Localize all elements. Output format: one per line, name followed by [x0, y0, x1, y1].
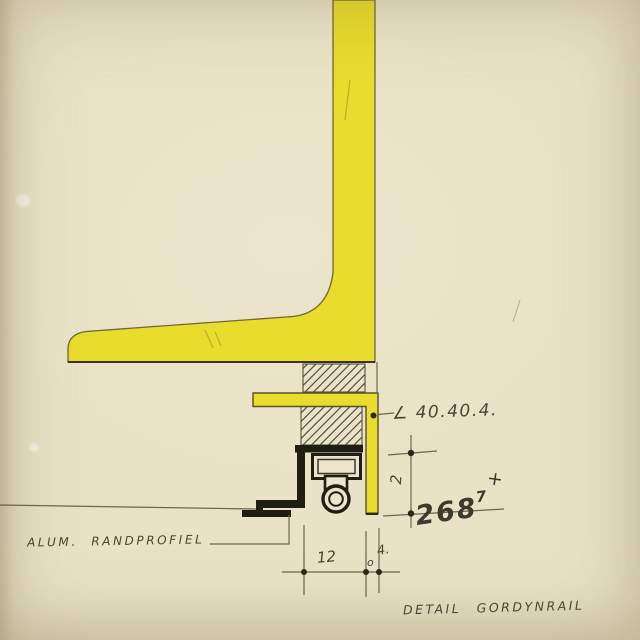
- blocking-hatch-lower: [301, 407, 362, 446]
- dim-gap-origin: o: [367, 557, 374, 568]
- edge-profile-step-b: [242, 510, 291, 517]
- height-bottom-dot: [408, 510, 414, 516]
- paper-speck: [29, 443, 39, 452]
- bottom-dot-1: [301, 569, 307, 575]
- edge-profile-leader: [210, 515, 289, 544]
- bottom-dot-3: [376, 569, 382, 575]
- dim-bottom-width: 12: [316, 549, 336, 566]
- mullion-profile: [68, 0, 375, 362]
- angle-leader-dot: [371, 413, 377, 419]
- ground-line: [0, 505, 256, 509]
- edge-profile-label: ALUM. RANDPROFIEL: [27, 533, 205, 548]
- height-top-dot: [408, 450, 414, 456]
- bottom-dot-2: [363, 569, 369, 575]
- dim-rail-depth: 2: [389, 474, 405, 485]
- dim-gap: 4.: [376, 543, 390, 558]
- blocking-hatch-upper: [303, 364, 365, 392]
- rail-top-plate: [295, 445, 363, 453]
- dim-height-sup: 7: [475, 487, 488, 506]
- dimension-lines: [0, 362, 504, 597]
- rail-glider-ring-inner: [329, 492, 343, 506]
- drawing-sheet: ∠ 40.40.4. 2687 + 2 12 o 4. ALUM. RANDPR…: [0, 0, 640, 640]
- edge-profile-step-a: [256, 500, 305, 508]
- paper-speck: [16, 194, 30, 207]
- rail-left-web: [297, 445, 305, 507]
- dim-height-plus: +: [486, 469, 504, 490]
- angle-spec-label: ∠ 40.40.4.: [392, 402, 498, 423]
